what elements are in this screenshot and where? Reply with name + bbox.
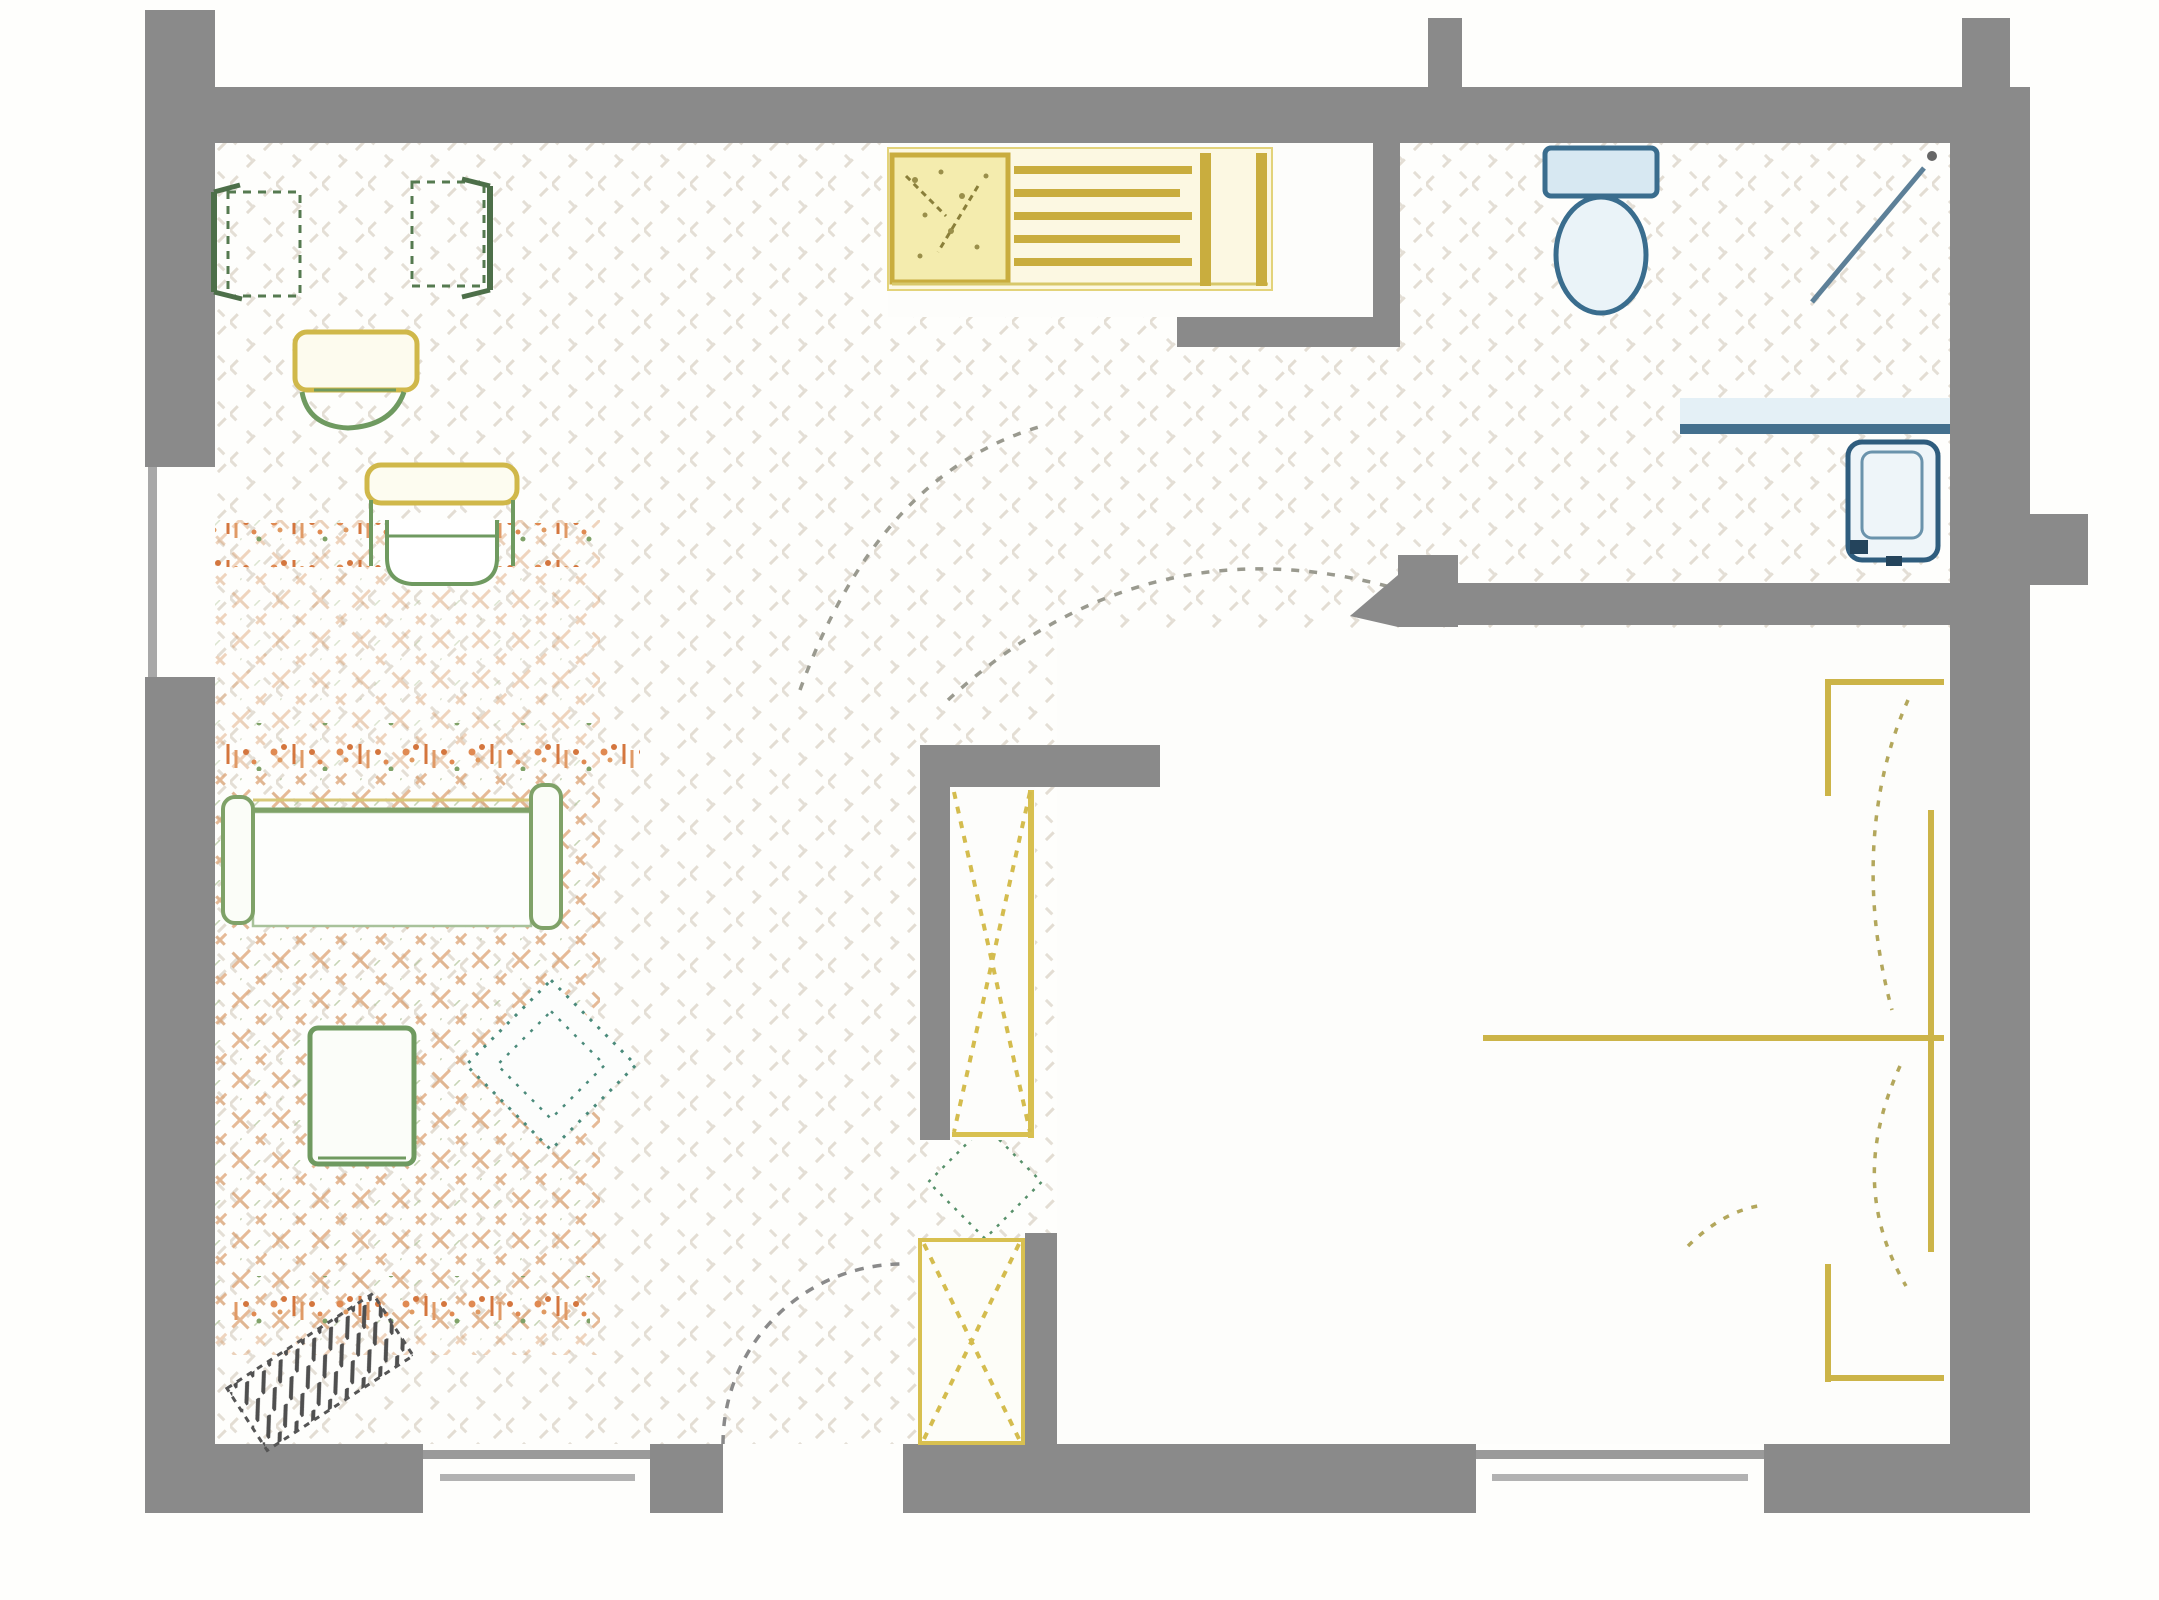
window-bottom-left-glass2 [440,1474,635,1481]
left-wall-upper [145,87,215,467]
window-left-glass [148,467,157,677]
rug-flower-border-middle [222,723,640,771]
wardrobe-upper [950,787,1035,1140]
top-middle-pier [1428,18,1462,90]
armchair [367,465,517,584]
area-rug [170,520,640,1355]
shower-hinge-dot [1927,151,1937,161]
kitchen-partition-vertical [1373,143,1400,347]
window-bottom-left-glass [423,1450,650,1459]
entry-opening [723,1444,903,1513]
wardrobe-lower [920,1240,1023,1443]
floor-plan-drawing [0,0,2159,1600]
closet-left-wall [920,787,950,1140]
vanity-counter [1680,398,1950,428]
kitchen-sink-unit [892,155,1008,282]
kitchen-partition-horizontal [1177,317,1400,347]
bathroom-bottom-wall [1455,583,1950,625]
vanity-counter-edge [1680,424,1950,434]
floor-plan-page [0,0,2159,1600]
left-wall-lower [145,677,215,1513]
counter-divider-2 [1256,153,1267,286]
window-bottom-right-glass [1476,1450,1764,1459]
top-right-pier [1962,18,2010,90]
right-wall [1950,87,2030,1513]
top-wall [145,87,2010,143]
vanity-sink [1848,442,1938,566]
kitchen-counter [888,148,1272,290]
closet-lower-right-wall [1025,1233,1057,1450]
right-wall-pier [2030,514,2088,585]
toilet [1545,148,1657,313]
rug-flower-border-bottom [230,1276,590,1334]
sofa-armrest-right [531,785,561,928]
closet-cap-wall [920,745,1160,787]
counter-divider-1 [1200,153,1211,286]
coffee-table [310,1028,414,1164]
top-left-pier [145,10,215,90]
bathroom-door-stub [1398,555,1458,627]
sofa-armrest-left [223,797,253,923]
window-bottom-right-glass2 [1492,1474,1748,1481]
